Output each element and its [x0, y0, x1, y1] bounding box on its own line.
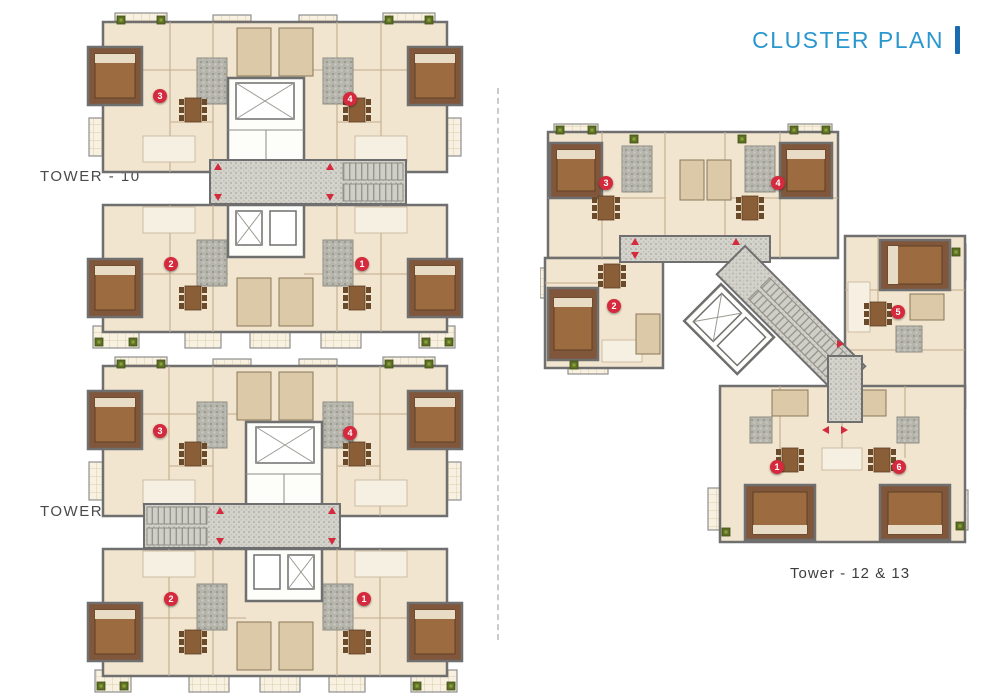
unit-marker-tower10-1: 1 [355, 257, 369, 271]
unit-marker-tower11-2: 2 [164, 592, 178, 606]
dashed-divider [497, 88, 499, 640]
unit-marker-tower10-3: 3 [153, 89, 167, 103]
tower12-13-label: Tower - 12 & 13 [790, 565, 910, 582]
unit-marker-tower11-3: 3 [153, 424, 167, 438]
cluster-plan-page: CLUSTER PLAN TOWER - 10 TOWER - 11 Tower… [0, 0, 1000, 700]
page-title: CLUSTER PLAN [752, 27, 944, 54]
tower11-floorplan-drawing [85, 356, 465, 700]
unit-marker-tower12_13-6: 6 [892, 460, 906, 474]
unit-marker-tower12_13-4: 4 [771, 176, 785, 190]
unit-marker-tower10-2: 2 [164, 257, 178, 271]
unit-marker-tower11-1: 1 [357, 592, 371, 606]
unit-marker-tower11-4: 4 [343, 426, 357, 440]
tower10-floorplan-drawing [85, 12, 465, 357]
tower10-floorplan [85, 12, 465, 357]
unit-marker-tower12_13-1: 1 [770, 460, 784, 474]
unit-marker-tower10-4: 4 [343, 92, 357, 106]
unit-marker-tower12_13-5: 5 [891, 305, 905, 319]
unit-marker-tower12_13-3: 3 [599, 176, 613, 190]
unit-marker-tower12_13-2: 2 [607, 299, 621, 313]
tower11-floorplan [85, 356, 465, 700]
title-accent-bar [955, 26, 960, 54]
page-header: CLUSTER PLAN [730, 26, 960, 54]
